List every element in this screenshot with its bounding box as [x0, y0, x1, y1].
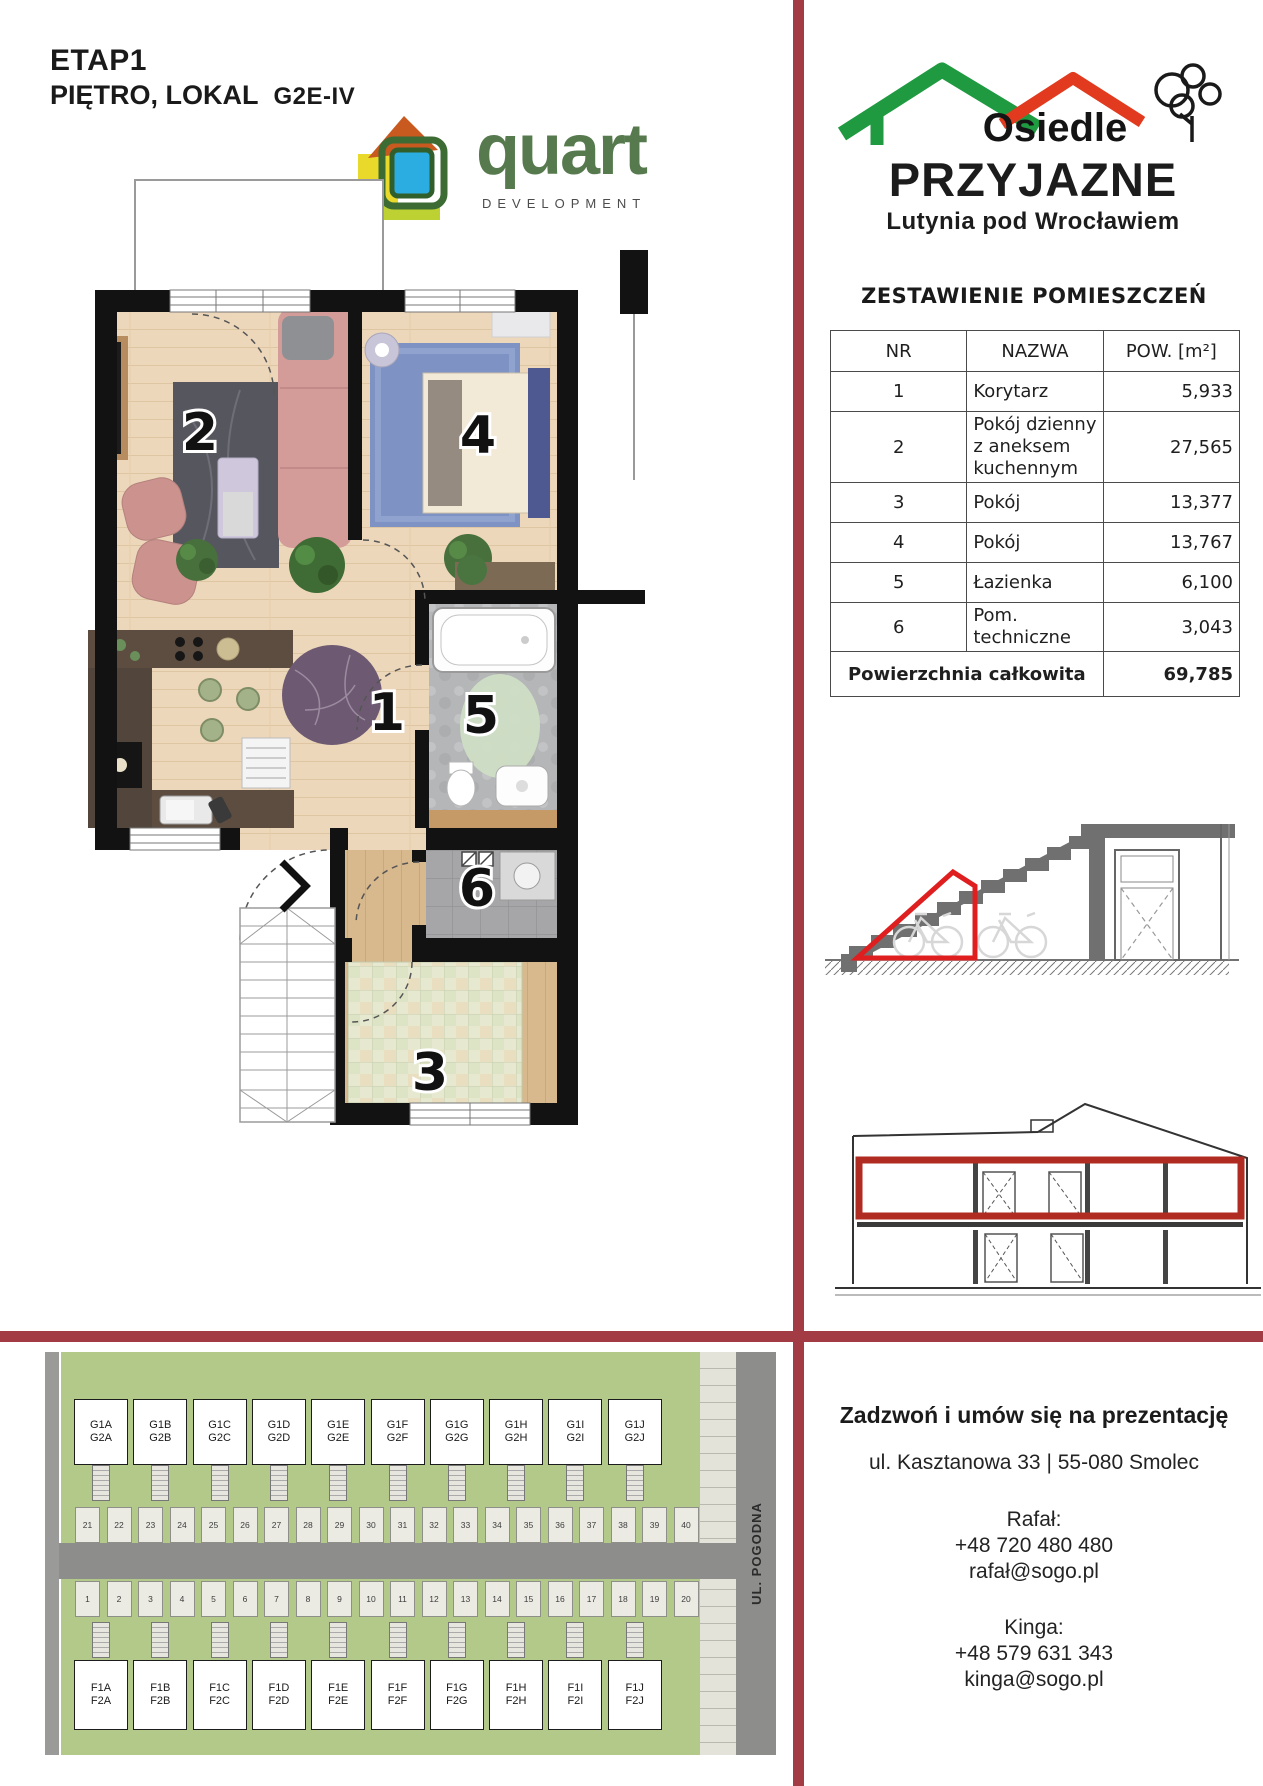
building-label: G1I [549, 1419, 601, 1432]
entry-stub [270, 1622, 288, 1658]
plot-number: 10 [359, 1581, 384, 1617]
site-building-f: F1CF2C [193, 1660, 247, 1730]
plot-number: 11 [390, 1581, 415, 1617]
room-name-cell: Łazienka [967, 563, 1103, 603]
entry-stub [211, 1465, 229, 1501]
estate-logo-line1: Osiedle [930, 106, 1180, 151]
entry-stub [448, 1622, 466, 1658]
room-label-1: 1 [369, 683, 405, 743]
balcony-outline [135, 180, 383, 292]
floor-highlight-outline [859, 1160, 1241, 1216]
street-label-wrap: UL. POGODNA [736, 1352, 776, 1755]
building-label: G1J [609, 1419, 661, 1432]
plot-number: 6 [233, 1581, 258, 1617]
plot-number: 27 [264, 1507, 289, 1543]
site-building-g: G1IG2I [548, 1399, 602, 1465]
building-label: G2H [490, 1432, 542, 1445]
page-title: ETAP1 PIĘTRO, LOKAL G2E-IV [50, 44, 355, 114]
building-label: G2F [372, 1432, 424, 1445]
entry-stub [329, 1622, 347, 1658]
building-label: G1B [134, 1419, 186, 1432]
table-row: 6Pom. techniczne3,043 [831, 603, 1240, 652]
plot-number: 28 [296, 1507, 321, 1543]
entry-stub [270, 1465, 288, 1501]
building-label: F1G [431, 1682, 483, 1695]
building-label: F2E [312, 1695, 364, 1708]
plot-number: 30 [359, 1507, 384, 1543]
plot-number: 12 [422, 1581, 447, 1617]
room-area-cell: 5,933 [1103, 372, 1239, 412]
site-building-g: G1BG2B [133, 1399, 187, 1465]
storage-door [1115, 850, 1179, 960]
entry-stub [626, 1465, 644, 1501]
total-label: Powierzchnia całkowita [831, 652, 1104, 697]
entry-stub [92, 1465, 110, 1501]
agent-phone: +48 720 480 480 [806, 1533, 1262, 1559]
col-header-area: POW. [m²] [1103, 331, 1239, 372]
plot-number: 14 [485, 1581, 510, 1617]
contact-block: Zadzwoń i umów się na prezentację ul. Ka… [806, 1402, 1262, 1723]
plot-number: 17 [579, 1581, 604, 1617]
street-label: UL. POGODNA [749, 1502, 764, 1605]
building-label: G1A [75, 1419, 127, 1432]
plot-number: 35 [516, 1507, 541, 1543]
room-label-6: 6 [459, 859, 495, 919]
site-plan: UL. POGODNA G1AG2AG1BG2BG1CG2CG1DG2DG1EG… [45, 1352, 776, 1755]
table-row: 5Łazienka6,100 [831, 563, 1240, 603]
plot-number: 21 [75, 1507, 100, 1543]
plot-number: 9 [327, 1581, 352, 1617]
building-label: F1A [75, 1682, 127, 1695]
floor-label: PIĘTRO, LOKAL [50, 80, 259, 110]
building-label: G2J [609, 1432, 661, 1445]
building-label: F2A [75, 1695, 127, 1708]
building-label: F1E [312, 1682, 364, 1695]
room-label-5: 5 [463, 686, 499, 746]
site-building-f: F1EF2E [311, 1660, 365, 1730]
building-section-drawing [833, 1092, 1263, 1307]
vertical-divider [793, 0, 804, 1786]
building-label: F1D [253, 1682, 305, 1695]
building-label: G1G [431, 1419, 483, 1432]
building-label: F2B [134, 1695, 186, 1708]
building-label: F2G [431, 1695, 483, 1708]
entry-stub [211, 1622, 229, 1658]
building-label: G2B [134, 1432, 186, 1445]
plot-number: 36 [548, 1507, 573, 1543]
site-building-f: F1IF2I [548, 1660, 602, 1730]
room-area-cell: 13,767 [1103, 523, 1239, 563]
plot-number: 26 [233, 1507, 258, 1543]
etap-number: 1 [130, 44, 147, 77]
agent-name: Kinga: [806, 1615, 1262, 1641]
building-label: F2F [372, 1695, 424, 1708]
agent-email: kinga@sogo.pl [806, 1667, 1262, 1693]
entry-stub [448, 1465, 466, 1501]
rooms-table-footer-row: Powierzchnia całkowita 69,785 [831, 652, 1240, 697]
plot-number: 19 [642, 1581, 667, 1617]
entry-stub [329, 1465, 347, 1501]
site-building-g: G1FG2F [371, 1399, 425, 1465]
horizontal-road [59, 1543, 736, 1579]
plot-number: 16 [548, 1581, 573, 1617]
building-label: F1H [490, 1682, 542, 1695]
estate-logo-line3: Lutynia pod Wrocławiem [826, 208, 1240, 236]
site-building-f: F1DF2D [252, 1660, 306, 1730]
bed-headboard [528, 368, 550, 518]
site-building-g: G1DG2D [252, 1399, 306, 1465]
building-label: F1C [194, 1682, 246, 1695]
plant [457, 555, 487, 585]
building-label: F1I [549, 1682, 601, 1695]
plot-number: 23 [138, 1507, 163, 1543]
plot-number: 37 [579, 1507, 604, 1543]
contact-address: ul. Kasztanowa 33 | 55-080 Smolec [806, 1451, 1262, 1475]
entry-stub [566, 1465, 584, 1501]
agent-phone: +48 579 631 343 [806, 1641, 1262, 1667]
total-area: 69,785 [1103, 652, 1239, 697]
site-building-g: G1GG2G [430, 1399, 484, 1465]
agent-email: rafał@sogo.pl [806, 1559, 1262, 1585]
building-label: G1F [372, 1419, 424, 1432]
plot-number: 15 [516, 1581, 541, 1617]
drawer-unit [242, 738, 290, 788]
room-nr-cell: 3 [831, 483, 967, 523]
entry-stub [626, 1622, 644, 1658]
rooms-table-header-row: NR NAZWA POW. [m²] [831, 331, 1240, 372]
sofa-cushion [282, 316, 334, 360]
building-label: G2A [75, 1432, 127, 1445]
room-name-cell: Pokój [967, 523, 1103, 563]
unit-code: G2E-IV [274, 83, 356, 110]
room-label-2: 2 [182, 403, 218, 463]
entry-stub [92, 1622, 110, 1658]
estate-logo-line2: PRZYJAZNE [826, 152, 1240, 207]
entrance-arrow-icon [282, 862, 306, 910]
bed-blanket [428, 380, 462, 506]
plot-number: 39 [642, 1507, 667, 1543]
building-label: G1E [312, 1419, 364, 1432]
building-label: G1D [253, 1419, 305, 1432]
stairs [240, 908, 335, 1122]
stairs-section-drawing [823, 810, 1243, 1015]
plot-number: 4 [170, 1581, 195, 1617]
site-building-f: F1AF2A [74, 1660, 128, 1730]
room-name-cell: Korytarz [967, 372, 1103, 412]
contact-agent: Rafał:+48 720 480 480rafał@sogo.pl [806, 1507, 1262, 1585]
building-label: G1C [194, 1419, 246, 1432]
plot-number: 38 [611, 1507, 636, 1543]
room-nr-cell: 4 [831, 523, 967, 563]
room-name-cell: Pokój [967, 483, 1103, 523]
etap-label: ETAP [50, 44, 130, 77]
building-label: F1B [134, 1682, 186, 1695]
plot-number: 5 [201, 1581, 226, 1617]
table-row: 1Korytarz5,933 [831, 372, 1240, 412]
site-building-g: G1HG2H [489, 1399, 543, 1465]
plot-number: 31 [390, 1507, 415, 1543]
plot-number: 32 [422, 1507, 447, 1543]
plant [176, 539, 218, 581]
plot-number: 7 [264, 1581, 289, 1617]
plot-number: 1 [75, 1581, 100, 1617]
building-label: F1F [372, 1682, 424, 1695]
table-row: 2Pokój dzienny z aneksem kuchennym27,565 [831, 412, 1240, 483]
building-label: F1J [609, 1682, 661, 1695]
agent-name: Rafał: [806, 1507, 1262, 1533]
building-label: G2E [312, 1432, 364, 1445]
toilet [447, 770, 475, 806]
plot-number: 25 [201, 1507, 226, 1543]
plot-number: 24 [170, 1507, 195, 1543]
site-building-g: G1EG2E [311, 1399, 365, 1465]
rooms-table-title: ZESTAWIENIE POMIESZCZEŃ [828, 284, 1240, 308]
kitchen-basin [217, 638, 239, 660]
building-label: G2D [253, 1432, 305, 1445]
plot-number: 13 [453, 1581, 478, 1617]
building-label: G2I [549, 1432, 601, 1445]
building-label: F2J [609, 1695, 661, 1708]
building-label: F2I [549, 1695, 601, 1708]
staircase [841, 836, 1093, 972]
plot-number: 22 [107, 1507, 132, 1543]
room-nr-cell: 6 [831, 603, 967, 652]
site-building-g: G1JG2J [608, 1399, 662, 1465]
room-area-cell: 3,043 [1103, 603, 1239, 652]
entry-stub [507, 1622, 525, 1658]
room-nr-cell: 2 [831, 412, 967, 483]
plot-number: 2 [107, 1581, 132, 1617]
site-building-f: F1HF2H [489, 1660, 543, 1730]
room-area-cell: 27,565 [1103, 412, 1239, 483]
contact-agent: Kinga:+48 579 631 343kinga@sogo.pl [806, 1615, 1262, 1693]
site-building-f: F1FF2F [371, 1660, 425, 1730]
entry-stub [151, 1622, 169, 1658]
site-building-f: F1BF2B [133, 1660, 187, 1730]
entry-stub [566, 1622, 584, 1658]
room-name-cell: Pokój dzienny z aneksem kuchennym [967, 412, 1103, 483]
plot-number: 20 [674, 1581, 699, 1617]
table-row: 3Pokój13,377 [831, 483, 1240, 523]
entry-stub [151, 1465, 169, 1501]
plot-number: 33 [453, 1507, 478, 1543]
col-header-name: NAZWA [967, 331, 1103, 372]
col-header-nr: NR [831, 331, 967, 372]
room-area-cell: 6,100 [1103, 563, 1239, 603]
entry-stub [389, 1622, 407, 1658]
flyer-page: ETAP1 PIĘTRO, LOKAL G2E-IV quart DEVELOP… [0, 0, 1263, 1786]
room-nr-cell: 5 [831, 563, 967, 603]
building-label: F2H [490, 1695, 542, 1708]
table-row: 4Pokój13,767 [831, 523, 1240, 563]
site-building-g: G1AG2A [74, 1399, 128, 1465]
bathroom-wood-strip [429, 810, 557, 828]
room-label-3: 3 [412, 1043, 448, 1103]
contact-title: Zadzwoń i umów się na prezentację [806, 1402, 1262, 1429]
entry-stub [507, 1465, 525, 1501]
plot-number: 8 [296, 1581, 321, 1617]
rooms-table: NR NAZWA POW. [m²] 1Korytarz5,9332Pokój … [830, 330, 1240, 697]
building-label: G2G [431, 1432, 483, 1445]
horizontal-divider [0, 1331, 1263, 1342]
building-label: G1H [490, 1419, 542, 1432]
building-label: F2C [194, 1695, 246, 1708]
plot-number: 29 [327, 1507, 352, 1543]
plot-number: 34 [485, 1507, 510, 1543]
floor-plan: 2 4 1 5 6 3 [60, 150, 660, 1135]
site-building-g: G1CG2C [193, 1399, 247, 1465]
entry-stub [389, 1465, 407, 1501]
room-label-4: 4 [460, 406, 496, 466]
corridor-rug [282, 645, 382, 745]
plant [289, 537, 345, 593]
building-label: G2C [194, 1432, 246, 1445]
room-area-cell: 13,377 [1103, 483, 1239, 523]
site-building-f: F1GF2G [430, 1660, 484, 1730]
plot-number: 3 [138, 1581, 163, 1617]
room-nr-cell: 1 [831, 372, 967, 412]
plot-number: 40 [674, 1507, 699, 1543]
building-label: F2D [253, 1695, 305, 1708]
plot-number: 18 [611, 1581, 636, 1617]
site-building-f: F1JF2J [608, 1660, 662, 1730]
room-name-cell: Pom. techniczne [967, 603, 1103, 652]
